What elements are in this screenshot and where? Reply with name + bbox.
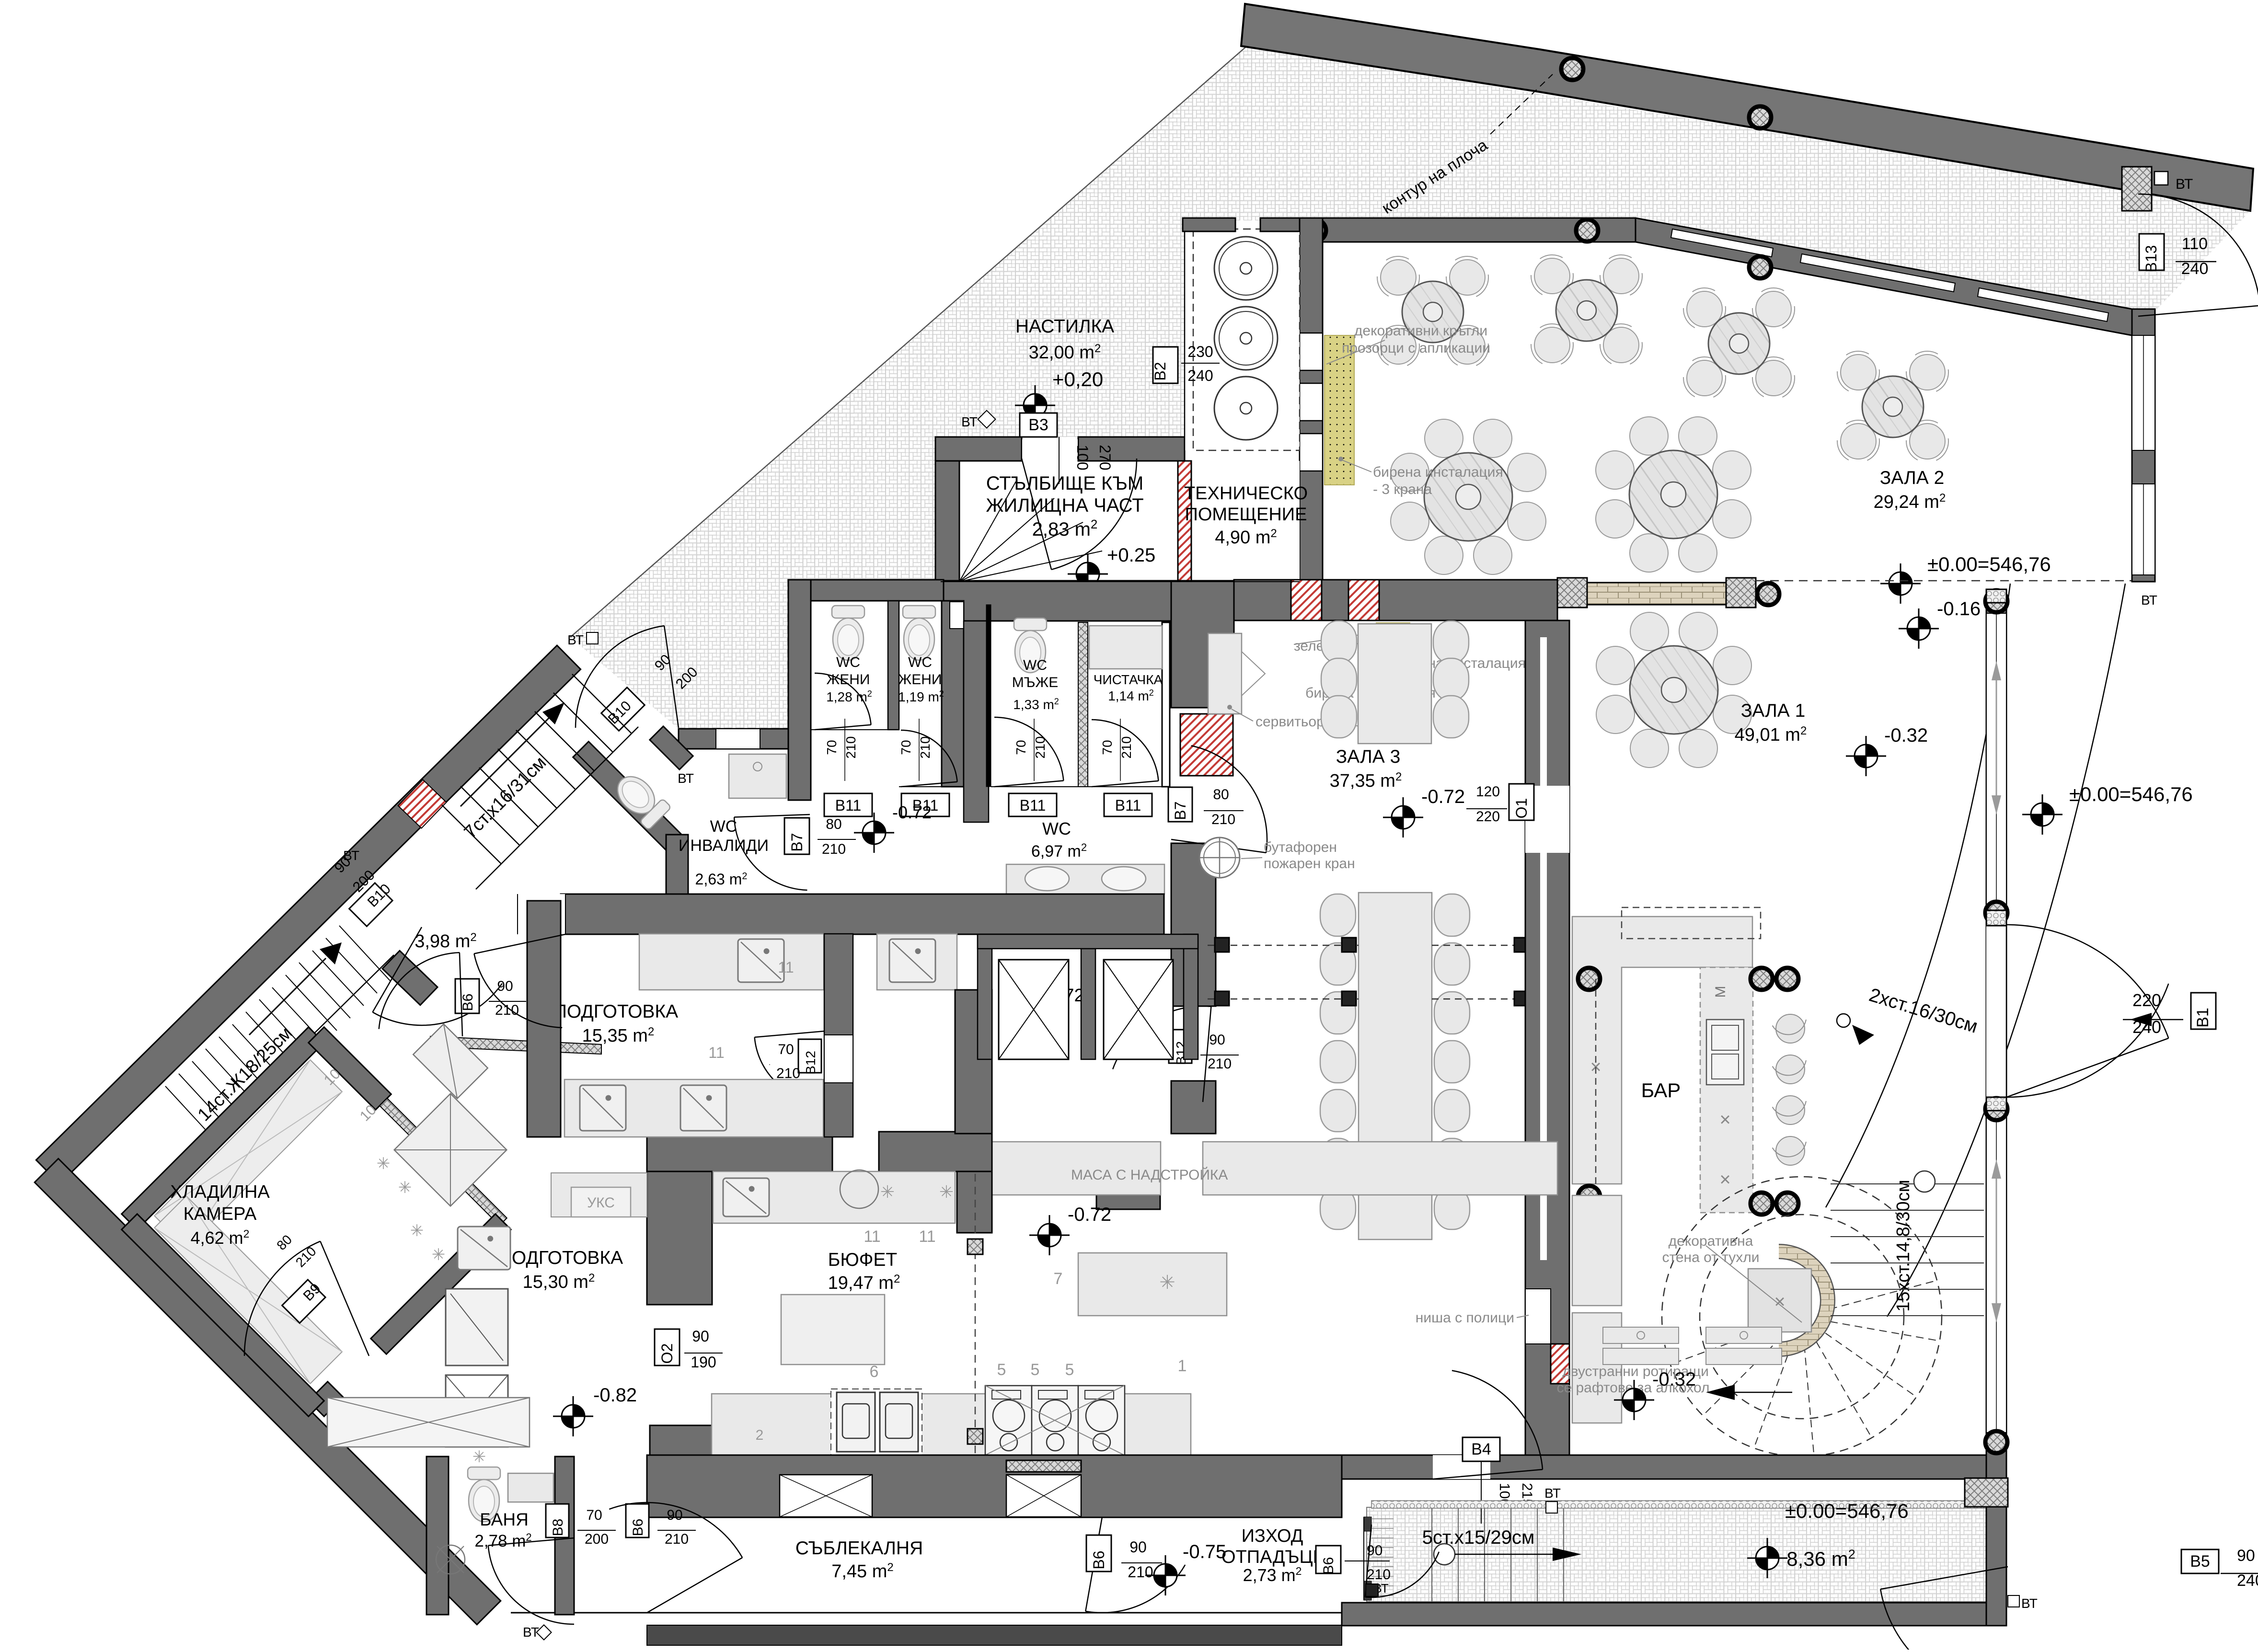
svg-text:210: 210 bbox=[1033, 736, 1048, 759]
svg-text:70: 70 bbox=[778, 1042, 794, 1057]
svg-text:✳: ✳ bbox=[939, 1182, 954, 1202]
svg-text:ВТ: ВТ bbox=[343, 848, 359, 863]
svg-text:1: 1 bbox=[1178, 1357, 1187, 1375]
svg-text:240: 240 bbox=[2181, 260, 2209, 278]
svg-text:ЖЕНИ: ЖЕНИ bbox=[827, 672, 870, 688]
svg-text:ЧИСТАЧКА: ЧИСТАЧКА bbox=[1094, 672, 1163, 687]
svg-text:ВТ: ВТ bbox=[567, 632, 584, 647]
svg-text:210: 210 bbox=[776, 1066, 800, 1081]
svg-text:11: 11 bbox=[919, 1228, 935, 1246]
svg-text:120: 120 bbox=[1476, 784, 1500, 800]
svg-text:110: 110 bbox=[2182, 235, 2208, 253]
svg-text:B11: B11 bbox=[835, 797, 862, 814]
svg-text:15,30 m2: 15,30 m2 bbox=[523, 1272, 595, 1293]
svg-text:2,63 m2: 2,63 m2 bbox=[695, 871, 748, 888]
svg-text:бутафорен: бутафорен bbox=[1264, 839, 1337, 855]
svg-text:B6: B6 bbox=[1321, 1557, 1336, 1575]
svg-text:ниша с полици: ниша с полици bbox=[1416, 1310, 1514, 1326]
svg-text:B3: B3 bbox=[1028, 416, 1048, 434]
svg-text:5: 5 bbox=[1065, 1361, 1074, 1379]
svg-text:6: 6 bbox=[870, 1363, 879, 1381]
svg-text:декоративни кръгли: декоративни кръгли bbox=[1354, 323, 1487, 339]
svg-text:±0.00=546,76: ±0.00=546,76 bbox=[2069, 783, 2193, 805]
svg-text:ХЛАДИЛНА: ХЛАДИЛНА bbox=[170, 1182, 270, 1202]
svg-text:70: 70 bbox=[1100, 740, 1115, 755]
svg-text:ИЗХОД: ИЗХОД bbox=[1242, 1526, 1303, 1546]
svg-text:✳: ✳ bbox=[377, 1155, 391, 1173]
svg-text:190: 190 bbox=[691, 1354, 716, 1371]
svg-text:БЮФЕТ: БЮФЕТ bbox=[828, 1250, 897, 1270]
svg-text:ВТ: ВТ bbox=[678, 771, 694, 786]
svg-text:5: 5 bbox=[1031, 1361, 1040, 1379]
svg-text:×: × bbox=[1719, 1169, 1730, 1190]
svg-text:±0.00=546,76: ±0.00=546,76 bbox=[1785, 1500, 1909, 1522]
svg-text:ОТПАДЪЦИ: ОТПАДЪЦИ bbox=[1221, 1547, 1326, 1567]
svg-text:15хст.14,8/30см: 15хст.14,8/30см bbox=[1893, 1180, 1913, 1312]
svg-text:WC: WC bbox=[1042, 819, 1071, 838]
svg-text:±0.00=546,76: ±0.00=546,76 bbox=[1927, 553, 2051, 575]
svg-text:100: 100 bbox=[1074, 445, 1091, 470]
svg-text:5: 5 bbox=[997, 1361, 1006, 1379]
svg-text:37,35 m2: 37,35 m2 bbox=[1330, 770, 1402, 792]
svg-text:-0.32: -0.32 bbox=[1884, 725, 1928, 746]
svg-text:210: 210 bbox=[1211, 812, 1235, 827]
svg-text:90: 90 bbox=[1129, 1538, 1147, 1556]
svg-text:70: 70 bbox=[899, 740, 913, 755]
svg-text:МАСА С НАДСТРОЙКА: МАСА С НАДСТРОЙКА bbox=[1071, 1167, 1228, 1183]
svg-text:B11: B11 bbox=[1020, 797, 1046, 814]
svg-text:прозорци с апликации: прозорци с апликации bbox=[1342, 340, 1490, 356]
svg-text:240: 240 bbox=[1187, 367, 1213, 384]
svg-text:ВТ: ВТ bbox=[2021, 1596, 2038, 1611]
svg-text:стена от тухли: стена от тухли bbox=[1662, 1250, 1759, 1265]
svg-text:B6: B6 bbox=[1090, 1550, 1107, 1569]
svg-text:O1: O1 bbox=[1513, 798, 1530, 819]
svg-text:200: 200 bbox=[585, 1531, 609, 1547]
svg-text:19,47 m2: 19,47 m2 bbox=[828, 1273, 900, 1294]
svg-text:O2: O2 bbox=[658, 1343, 676, 1364]
svg-text:ВТ: ВТ bbox=[1544, 1486, 1561, 1501]
svg-text:ИНВАЛИДИ: ИНВАЛИДИ bbox=[679, 837, 769, 855]
svg-text:210: 210 bbox=[1367, 1567, 1391, 1583]
svg-text:90: 90 bbox=[497, 978, 513, 994]
svg-text:4,90 m2: 4,90 m2 bbox=[1215, 527, 1277, 548]
svg-text:пожарен кран: пожарен кран bbox=[1264, 856, 1355, 872]
svg-text:✳: ✳ bbox=[880, 1182, 895, 1202]
svg-text:ВТ: ВТ bbox=[2176, 176, 2193, 192]
svg-text:210: 210 bbox=[1119, 736, 1134, 759]
svg-text:-0.32: -0.32 bbox=[1652, 1369, 1696, 1390]
svg-text:2,78 m2: 2,78 m2 bbox=[474, 1531, 531, 1551]
svg-text:7,45 m2: 7,45 m2 bbox=[831, 1561, 894, 1582]
svg-text:230: 230 bbox=[1187, 343, 1213, 360]
svg-text:БАНЯ: БАНЯ bbox=[480, 1510, 529, 1529]
svg-text:220: 220 bbox=[2132, 990, 2161, 1010]
svg-text:УКС: УКС bbox=[587, 1195, 615, 1211]
svg-text:210: 210 bbox=[1208, 1056, 1232, 1072]
svg-text:✳: ✳ bbox=[1159, 1272, 1175, 1293]
svg-text:80: 80 bbox=[826, 816, 841, 832]
svg-text:11: 11 bbox=[778, 959, 794, 976]
svg-text:ЗАЛА 1: ЗАЛА 1 bbox=[1741, 700, 1806, 721]
svg-text:ПОДГОТОВКА: ПОДГОТОВКА bbox=[553, 1001, 678, 1022]
svg-text:90: 90 bbox=[1367, 1543, 1382, 1559]
svg-text:2: 2 bbox=[756, 1427, 764, 1443]
svg-text:СЪБЛЕКАЛНЯ: СЪБЛЕКАЛНЯ bbox=[795, 1538, 923, 1559]
svg-text:7: 7 bbox=[1054, 1270, 1063, 1288]
svg-text:КАМЕРА: КАМЕРА bbox=[184, 1204, 257, 1224]
svg-text:B12: B12 bbox=[803, 1051, 818, 1075]
svg-text:49,01 m2: 49,01 m2 bbox=[1735, 724, 1807, 746]
svg-text:210: 210 bbox=[918, 736, 933, 759]
svg-text:-0.72: -0.72 bbox=[1421, 786, 1465, 807]
svg-text:+0.25: +0.25 bbox=[1107, 545, 1155, 566]
svg-text:1,19 m2: 1,19 m2 bbox=[898, 689, 944, 704]
svg-text:ВТ: ВТ bbox=[961, 414, 978, 429]
svg-text:70: 70 bbox=[1014, 740, 1028, 755]
svg-text:1,33 m2: 1,33 m2 bbox=[1013, 697, 1059, 712]
svg-text:270: 270 bbox=[1096, 445, 1114, 470]
svg-text:1,14 m2: 1,14 m2 bbox=[1108, 688, 1154, 703]
svg-text:✳: ✳ bbox=[410, 1222, 424, 1240]
svg-text:МЪЖЕ: МЪЖЕ bbox=[1012, 675, 1058, 690]
svg-text:210: 210 bbox=[1128, 1563, 1153, 1581]
svg-text:B8: B8 bbox=[550, 1519, 566, 1537]
svg-text:210: 210 bbox=[495, 1002, 519, 1018]
svg-text:БАР: БАР bbox=[1641, 1079, 1681, 1101]
svg-text:210: 210 bbox=[822, 841, 846, 857]
svg-text:B4: B4 bbox=[1471, 1440, 1491, 1458]
svg-text:6,97 m2: 6,97 m2 bbox=[1031, 841, 1087, 861]
svg-text:-0.72: -0.72 bbox=[1068, 1204, 1111, 1225]
svg-text:WC: WC bbox=[1023, 657, 1047, 673]
svg-text:-0.75: -0.75 bbox=[1183, 1541, 1226, 1562]
svg-text:✳: ✳ bbox=[398, 1179, 412, 1197]
svg-text:11: 11 bbox=[708, 1044, 724, 1061]
svg-text:210: 210 bbox=[665, 1531, 689, 1547]
svg-text:-0.82: -0.82 bbox=[593, 1385, 637, 1406]
svg-text:B7: B7 bbox=[788, 833, 806, 851]
svg-text:- 3 крана: - 3 крана bbox=[1373, 482, 1432, 497]
svg-text:ЖЕНИ: ЖЕНИ bbox=[899, 672, 942, 688]
svg-text:B6: B6 bbox=[630, 1519, 646, 1537]
svg-text:1,28 m2: 1,28 m2 bbox=[826, 689, 872, 704]
svg-text:ВТ: ВТ bbox=[2141, 593, 2157, 608]
svg-text:29,24 m2: 29,24 m2 bbox=[1874, 492, 1946, 513]
svg-text:ЖИЛИЩНА ЧАСТ: ЖИЛИЩНА ЧАСТ bbox=[986, 495, 1143, 516]
svg-text:4,62 m2: 4,62 m2 bbox=[191, 1228, 250, 1248]
svg-text:ПОДГОТОВКА: ПОДГОТОВКА bbox=[498, 1248, 623, 1268]
svg-text:B6: B6 bbox=[460, 994, 476, 1011]
svg-text:70: 70 bbox=[586, 1507, 602, 1523]
svg-text:+0,20: +0,20 bbox=[1052, 368, 1103, 390]
svg-text:ЗАЛА 3: ЗАЛА 3 bbox=[1336, 746, 1401, 767]
svg-text:15,35 m2: 15,35 m2 bbox=[582, 1025, 655, 1046]
svg-text:B2: B2 bbox=[1152, 362, 1169, 380]
svg-text:240: 240 bbox=[2237, 1572, 2258, 1590]
svg-text:80: 80 bbox=[1213, 787, 1229, 803]
svg-text:210: 210 bbox=[843, 736, 858, 759]
svg-text:2,73 m2: 2,73 m2 bbox=[1243, 1565, 1302, 1585]
svg-text:70: 70 bbox=[824, 740, 839, 755]
svg-text:90: 90 bbox=[692, 1328, 709, 1345]
svg-text:2,83 m2: 2,83 m2 bbox=[1032, 517, 1098, 540]
svg-text:-0.16: -0.16 bbox=[1937, 598, 1981, 619]
svg-text:декоративна: декоративна bbox=[1669, 1233, 1753, 1249]
svg-text:90: 90 bbox=[1209, 1032, 1225, 1048]
svg-text:B13: B13 bbox=[2143, 245, 2160, 273]
svg-text:B11: B11 bbox=[1115, 797, 1141, 814]
svg-text:WC: WC bbox=[710, 817, 737, 836]
svg-text:3,98 m2: 3,98 m2 bbox=[415, 931, 477, 952]
svg-text:90: 90 bbox=[667, 1507, 682, 1523]
svg-text:32,00 m2: 32,00 m2 bbox=[1029, 342, 1101, 363]
svg-text:11: 11 bbox=[864, 1228, 880, 1246]
svg-text:бирена инсталация: бирена инсталация bbox=[1373, 464, 1503, 480]
svg-text:WC: WC bbox=[908, 654, 932, 670]
svg-text:НАСТИЛКА: НАСТИЛКА bbox=[1015, 316, 1114, 337]
svg-text:✳: ✳ bbox=[432, 1246, 446, 1264]
svg-text:×: × bbox=[1719, 1109, 1730, 1130]
svg-text:✳: ✳ bbox=[472, 1448, 486, 1466]
svg-text:СТЪЛБИЩЕ КЪМ: СТЪЛБИЩЕ КЪМ bbox=[986, 473, 1143, 494]
svg-text:B1: B1 bbox=[2194, 1008, 2212, 1028]
svg-text:B7: B7 bbox=[1172, 801, 1189, 820]
svg-text:-0.72: -0.72 bbox=[892, 803, 932, 822]
svg-text:ЗАЛА 2: ЗАЛА 2 bbox=[1880, 468, 1945, 488]
svg-text:ПОМЕЩЕНИЕ: ПОМЕЩЕНИЕ bbox=[1185, 505, 1307, 525]
svg-text:ТЕХНИЧЕСКО: ТЕХНИЧЕСКО bbox=[1184, 483, 1308, 504]
svg-text:B5: B5 bbox=[2190, 1552, 2210, 1571]
svg-text:90: 90 bbox=[2237, 1547, 2255, 1565]
svg-text:8,36 m2: 8,36 m2 bbox=[1786, 1547, 1855, 1570]
svg-text:WC: WC bbox=[836, 654, 860, 670]
svg-text:220: 220 bbox=[1476, 809, 1500, 825]
svg-text:М: М bbox=[1713, 986, 1728, 998]
